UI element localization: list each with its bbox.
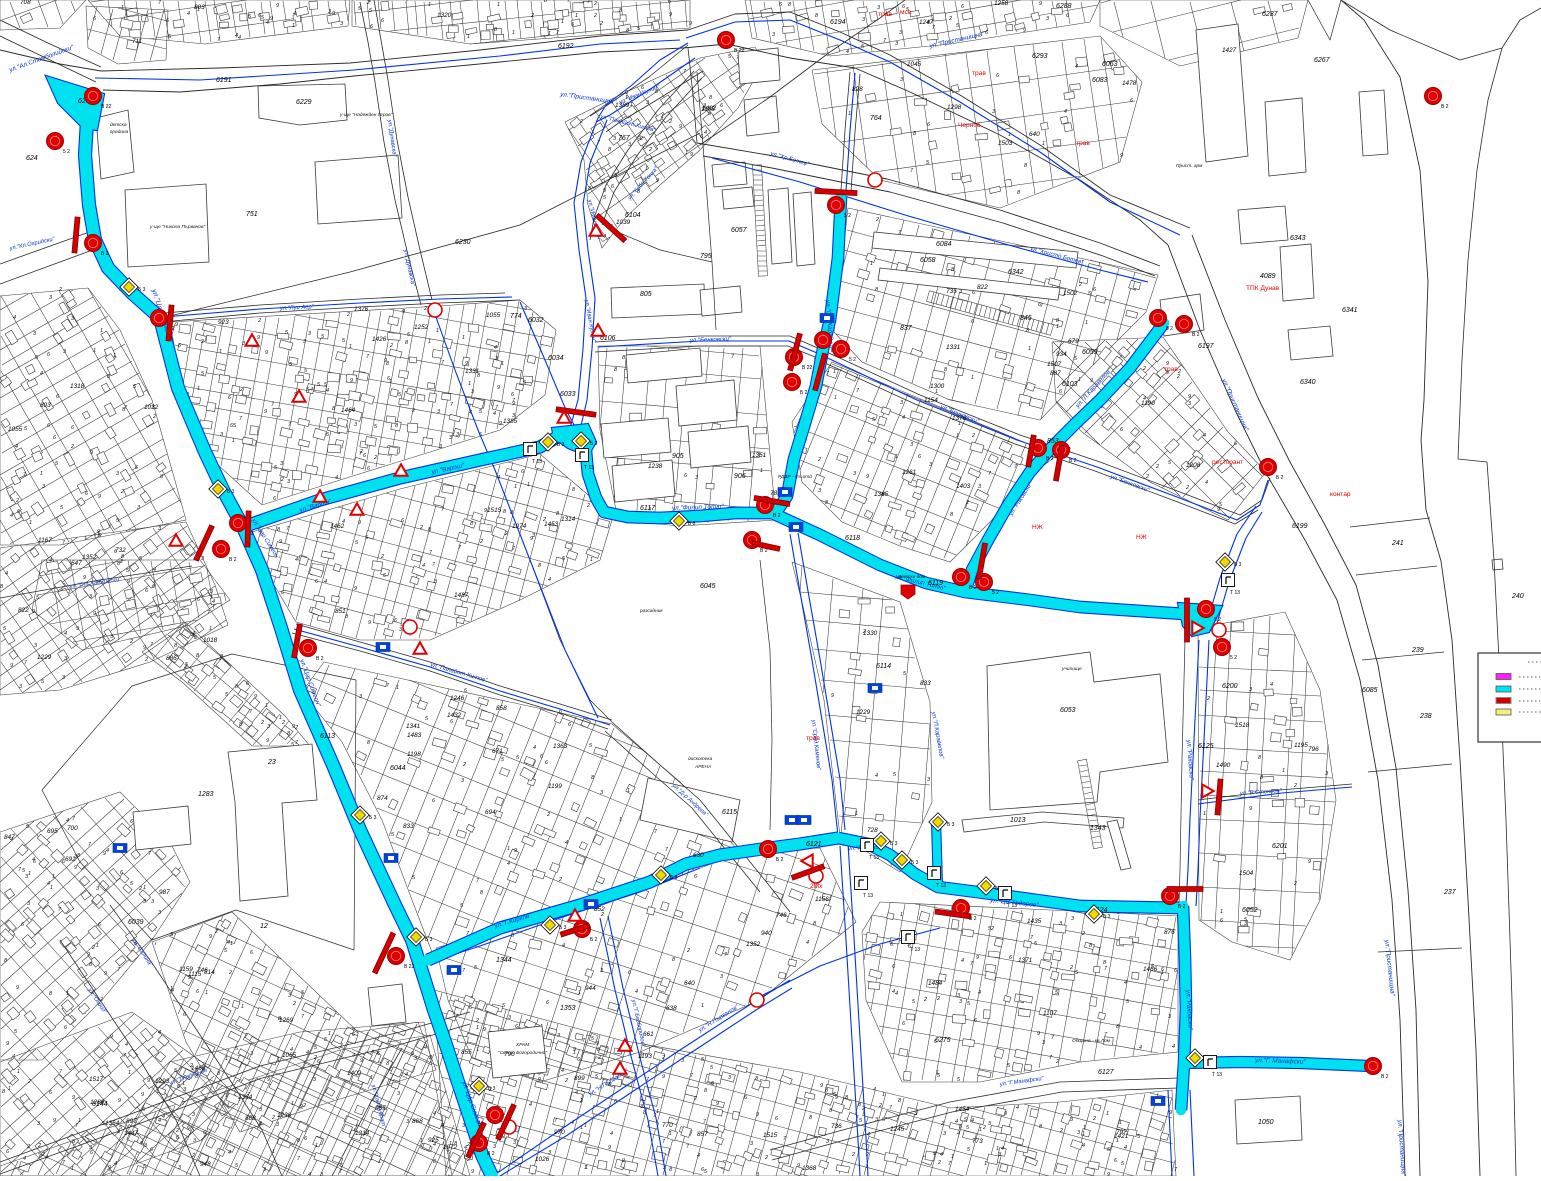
svg-text:9: 9 bbox=[499, 421, 502, 427]
svg-text:1269: 1269 bbox=[279, 1017, 294, 1024]
svg-text:770: 770 bbox=[662, 1122, 673, 1129]
svg-text:1045: 1045 bbox=[907, 61, 922, 68]
svg-text:23: 23 bbox=[267, 759, 276, 766]
svg-text:6: 6 bbox=[1059, 389, 1062, 395]
svg-text:3: 3 bbox=[756, 1172, 759, 1176]
svg-text:3: 3 bbox=[25, 874, 28, 880]
svg-text:1437: 1437 bbox=[454, 592, 469, 599]
svg-text:4: 4 bbox=[1075, 64, 1078, 70]
svg-text:6: 6 bbox=[130, 819, 133, 825]
svg-text:4: 4 bbox=[565, 840, 568, 846]
svg-text:8: 8 bbox=[1089, 943, 1092, 949]
svg-text:6103: 6103 bbox=[1062, 381, 1078, 388]
svg-text:8: 8 bbox=[944, 367, 947, 373]
svg-text:2: 2 bbox=[419, 525, 423, 531]
svg-text:4: 4 bbox=[324, 579, 327, 585]
svg-text:3: 3 bbox=[1046, 16, 1049, 22]
svg-text:ресторант: ресторант bbox=[1212, 459, 1243, 466]
svg-text:6343: 6343 bbox=[1290, 235, 1306, 242]
svg-text:4: 4 bbox=[697, 1153, 700, 1159]
svg-text:трав: трав bbox=[972, 70, 986, 77]
svg-text:5 2: 5 2 bbox=[63, 149, 70, 155]
svg-text:6: 6 bbox=[120, 870, 123, 876]
svg-text:3: 3 bbox=[406, 1119, 409, 1125]
svg-text:4: 4 bbox=[295, 557, 298, 563]
svg-text:4: 4 bbox=[867, 1132, 870, 1138]
svg-text:732: 732 bbox=[115, 547, 126, 554]
svg-text:6: 6 bbox=[6, 1149, 9, 1155]
svg-text:238: 238 bbox=[1419, 713, 1432, 720]
svg-text:3: 3 bbox=[1042, 1040, 1045, 1046]
svg-text:3: 3 bbox=[750, 1141, 753, 1147]
svg-text:2: 2 bbox=[228, 970, 232, 976]
svg-text:1: 1 bbox=[548, 31, 551, 37]
svg-text:1: 1 bbox=[685, 150, 688, 156]
svg-text:1: 1 bbox=[501, 361, 504, 367]
svg-text:1156: 1156 bbox=[815, 896, 829, 903]
svg-text:3: 3 bbox=[354, 422, 357, 428]
svg-text:4: 4 bbox=[875, 773, 878, 779]
svg-text:4: 4 bbox=[1205, 480, 1208, 486]
svg-text:2: 2 bbox=[504, 531, 508, 537]
svg-text:8: 8 bbox=[332, 406, 335, 412]
svg-text:6: 6 bbox=[571, 22, 574, 28]
svg-text:905: 905 bbox=[672, 453, 684, 460]
svg-text:2: 2 bbox=[593, 1, 597, 7]
svg-text:8: 8 bbox=[49, 991, 52, 997]
svg-text:1055: 1055 bbox=[486, 312, 501, 319]
svg-text:Б 2: Б 2 bbox=[101, 251, 109, 257]
svg-text:6: 6 bbox=[568, 722, 571, 728]
svg-text:5 2: 5 2 bbox=[1166, 326, 1173, 332]
svg-text:6: 6 bbox=[974, 1018, 977, 1024]
svg-text:6053: 6053 bbox=[1060, 707, 1076, 714]
svg-text:6115: 6115 bbox=[722, 809, 737, 816]
svg-text:2: 2 bbox=[965, 500, 969, 506]
svg-text:1: 1 bbox=[100, 328, 103, 334]
svg-text:2: 2 bbox=[586, 503, 590, 509]
svg-text:3: 3 bbox=[1070, 1117, 1073, 1123]
svg-text:8: 8 bbox=[89, 962, 92, 968]
svg-text:1: 1 bbox=[265, 703, 268, 709]
svg-text:1208: 1208 bbox=[1186, 462, 1201, 469]
svg-text:1: 1 bbox=[476, 1025, 479, 1031]
svg-text:638: 638 bbox=[666, 1005, 677, 1012]
svg-text:1: 1 bbox=[40, 471, 43, 477]
svg-text:Б 3: Б 3 bbox=[590, 441, 598, 447]
svg-text:1: 1 bbox=[29, 520, 32, 526]
svg-text:746: 746 bbox=[776, 912, 787, 919]
svg-text:9: 9 bbox=[264, 409, 267, 415]
svg-text:4: 4 bbox=[1203, 433, 1206, 439]
svg-text:4: 4 bbox=[23, 1156, 26, 1162]
svg-text:4: 4 bbox=[561, 1068, 564, 1074]
svg-text:1: 1 bbox=[661, 114, 664, 120]
svg-text:1435: 1435 bbox=[1027, 918, 1042, 925]
svg-text:4: 4 bbox=[1082, 1143, 1085, 1149]
svg-text:2: 2 bbox=[530, 13, 534, 19]
svg-text:РДВР - Фл.отд: РДВР - Фл.отд bbox=[778, 474, 812, 480]
svg-text:8: 8 bbox=[1260, 775, 1263, 781]
svg-text:2: 2 bbox=[1092, 1116, 1096, 1122]
svg-text:1466: 1466 bbox=[191, 1065, 206, 1072]
svg-text:1: 1 bbox=[467, 34, 470, 40]
svg-text:Детски дом: Детски дом bbox=[897, 574, 926, 580]
svg-text:1: 1 bbox=[497, 2, 500, 8]
svg-text:8: 8 bbox=[433, 1159, 436, 1165]
svg-text:6063: 6063 bbox=[1102, 61, 1118, 68]
svg-text:944: 944 bbox=[585, 985, 596, 992]
svg-text:6: 6 bbox=[1009, 955, 1012, 961]
svg-text:3: 3 bbox=[959, 289, 962, 295]
svg-text:2: 2 bbox=[990, 926, 994, 932]
svg-text:1229: 1229 bbox=[856, 709, 871, 716]
svg-text:2: 2 bbox=[1069, 965, 1073, 971]
svg-text:4: 4 bbox=[961, 958, 964, 964]
svg-text:1: 1 bbox=[205, 990, 208, 996]
svg-text:4: 4 bbox=[422, 563, 425, 569]
svg-text:6: 6 bbox=[367, 466, 370, 472]
svg-text:3: 3 bbox=[495, 356, 498, 362]
svg-text:6: 6 bbox=[744, 1095, 747, 1101]
svg-text:мсв: мсв bbox=[900, 9, 912, 16]
svg-text:Б 3: Б 3 bbox=[947, 822, 955, 828]
svg-text:833: 833 bbox=[920, 680, 931, 687]
svg-text:8: 8 bbox=[174, 643, 177, 649]
svg-text:4: 4 bbox=[603, 234, 606, 240]
svg-text:6: 6 bbox=[64, 1025, 67, 1031]
svg-text:2: 2 bbox=[366, 0, 370, 6]
svg-text:1: 1 bbox=[66, 991, 69, 997]
svg-text:1245: 1245 bbox=[890, 1126, 905, 1133]
svg-text:3: 3 bbox=[1188, 401, 1191, 407]
svg-text:2: 2 bbox=[389, 343, 393, 349]
svg-text:4: 4 bbox=[955, 1119, 958, 1125]
svg-text:1: 1 bbox=[833, 369, 836, 375]
svg-text:2: 2 bbox=[579, 1098, 583, 1104]
svg-text:2: 2 bbox=[875, 217, 879, 223]
svg-text:833: 833 bbox=[403, 823, 414, 830]
svg-text:ТПК Дунав: ТПК Дунав bbox=[1246, 285, 1280, 292]
svg-text:8: 8 bbox=[829, 1108, 832, 1114]
svg-text:1: 1 bbox=[428, 2, 431, 8]
svg-text:6: 6 bbox=[53, 435, 56, 441]
svg-text:764: 764 bbox=[870, 115, 882, 122]
svg-text:2: 2 bbox=[1142, 366, 1146, 372]
svg-text:6: 6 bbox=[577, 1057, 580, 1063]
svg-text:4: 4 bbox=[493, 411, 496, 417]
svg-text:1385: 1385 bbox=[503, 418, 518, 425]
svg-text:837: 837 bbox=[900, 325, 913, 332]
svg-text:1: 1 bbox=[656, 1109, 659, 1115]
svg-text:1: 1 bbox=[96, 943, 99, 949]
svg-text:Б 3: Б 3 bbox=[890, 841, 898, 847]
svg-text:9: 9 bbox=[514, 848, 517, 854]
svg-text:8: 8 bbox=[597, 1047, 600, 1053]
svg-text:803: 803 bbox=[40, 402, 51, 409]
svg-text:876: 876 bbox=[1164, 929, 1175, 936]
svg-text:8: 8 bbox=[217, 1071, 220, 1077]
svg-text:1: 1 bbox=[590, 557, 593, 563]
svg-text:3: 3 bbox=[862, 17, 865, 23]
svg-text:3: 3 bbox=[613, 136, 616, 142]
svg-text:1039: 1039 bbox=[616, 219, 631, 226]
svg-text:3: 3 bbox=[37, 1121, 40, 1127]
svg-text:9: 9 bbox=[354, 586, 357, 592]
svg-text:1353: 1353 bbox=[560, 1005, 576, 1012]
svg-text:6: 6 bbox=[145, 588, 148, 594]
svg-text:2: 2 bbox=[1155, 464, 1159, 470]
svg-text:1331: 1331 bbox=[465, 368, 480, 375]
svg-text:987: 987 bbox=[159, 889, 170, 896]
svg-text:4: 4 bbox=[228, 1150, 231, 1156]
svg-text:3: 3 bbox=[988, 1121, 991, 1127]
svg-text:НЖ: НЖ bbox=[1136, 534, 1147, 541]
svg-text:9: 9 bbox=[1107, 1172, 1110, 1176]
svg-text:Б 3: Б 3 bbox=[227, 489, 235, 495]
svg-text:детска: детска bbox=[110, 122, 127, 128]
svg-text:4: 4 bbox=[1124, 1145, 1127, 1151]
svg-text:1: 1 bbox=[8, 1086, 11, 1092]
svg-text:3: 3 bbox=[532, 533, 535, 539]
svg-text:2Мх: 2Мх bbox=[810, 883, 823, 890]
svg-text:НЖ: НЖ bbox=[1032, 524, 1043, 531]
svg-text:В 22: В 22 bbox=[101, 104, 112, 110]
svg-text:1115: 1115 bbox=[188, 971, 202, 978]
svg-text:1363: 1363 bbox=[553, 743, 568, 750]
svg-text:1: 1 bbox=[219, 349, 222, 355]
svg-text:3: 3 bbox=[397, 1091, 400, 1097]
svg-text:3: 3 bbox=[263, 1167, 266, 1173]
svg-text:3: 3 bbox=[210, 589, 213, 595]
svg-text:3: 3 bbox=[399, 627, 402, 633]
svg-text:5 2: 5 2 bbox=[1230, 655, 1237, 661]
svg-text:4: 4 bbox=[873, 1087, 876, 1093]
svg-text:1: 1 bbox=[349, 344, 352, 350]
svg-text:дискотека: дискотека bbox=[688, 756, 713, 762]
svg-text:3: 3 bbox=[449, 435, 452, 441]
svg-text:у-ще "Никола Първанов": у-ще "Никола Първанов" bbox=[149, 224, 205, 230]
svg-text:4: 4 bbox=[978, 990, 981, 996]
svg-text:6032: 6032 bbox=[528, 317, 544, 324]
svg-text:Т 13: Т 13 bbox=[532, 459, 542, 465]
svg-text:4: 4 bbox=[1172, 1044, 1175, 1050]
svg-text:4: 4 bbox=[529, 1102, 532, 1108]
svg-text:8: 8 bbox=[405, 340, 408, 346]
svg-text:4: 4 bbox=[310, 387, 313, 393]
svg-text:8: 8 bbox=[825, 1088, 828, 1094]
svg-text:4: 4 bbox=[187, 11, 190, 17]
svg-text:1: 1 bbox=[848, 111, 851, 117]
svg-text:2: 2 bbox=[15, 498, 19, 504]
svg-text:Б 3: Б 3 bbox=[670, 875, 678, 881]
svg-text:1: 1 bbox=[1203, 811, 1206, 817]
svg-text:8: 8 bbox=[709, 95, 712, 101]
svg-text:8: 8 bbox=[825, 500, 828, 506]
svg-text:9: 9 bbox=[53, 1118, 56, 1124]
svg-text:9: 9 bbox=[209, 934, 212, 940]
svg-text:8: 8 bbox=[556, 511, 559, 517]
svg-text:В 22: В 22 bbox=[404, 964, 415, 970]
svg-text:4: 4 bbox=[158, 1030, 161, 1036]
svg-text:1: 1 bbox=[971, 375, 974, 381]
svg-text:4: 4 bbox=[125, 1042, 128, 1048]
svg-text:6: 6 bbox=[228, 395, 231, 401]
svg-text:8: 8 bbox=[614, 367, 617, 373]
svg-text:4: 4 bbox=[238, 35, 241, 41]
svg-text:разсадник: разсадник bbox=[639, 608, 663, 614]
svg-text:В 2: В 2 bbox=[1046, 456, 1054, 462]
svg-text:4: 4 bbox=[66, 818, 69, 824]
svg-text:2: 2 bbox=[940, 1121, 944, 1127]
svg-text:2: 2 bbox=[271, 1115, 275, 1121]
svg-text:6: 6 bbox=[521, 469, 524, 475]
svg-text:640: 640 bbox=[684, 980, 695, 987]
svg-text:9: 9 bbox=[1120, 153, 1123, 159]
svg-text:1: 1 bbox=[52, 874, 55, 880]
svg-text:1: 1 bbox=[979, 1127, 982, 1133]
svg-text:6: 6 bbox=[1093, 287, 1096, 293]
svg-text:4: 4 bbox=[15, 444, 18, 450]
svg-text:1: 1 bbox=[17, 1069, 20, 1075]
svg-text:Б 3: Б 3 bbox=[911, 860, 919, 866]
svg-text:1: 1 bbox=[1078, 377, 1081, 383]
svg-text:8: 8 bbox=[386, 361, 389, 367]
svg-text:8: 8 bbox=[367, 740, 370, 746]
svg-text:8: 8 bbox=[1039, 1124, 1042, 1130]
svg-text:2: 2 bbox=[313, 1055, 317, 1061]
svg-text:4: 4 bbox=[1139, 1045, 1142, 1051]
svg-text:6: 6 bbox=[85, 491, 88, 497]
svg-text:3: 3 bbox=[875, 1117, 878, 1123]
svg-text:1: 1 bbox=[855, 811, 858, 817]
svg-text:2: 2 bbox=[200, 339, 204, 345]
svg-text:8: 8 bbox=[395, 423, 398, 429]
svg-text:822: 822 bbox=[977, 284, 988, 291]
svg-text:3: 3 bbox=[720, 974, 723, 980]
svg-text:1: 1 bbox=[936, 1070, 939, 1076]
svg-text:1466: 1466 bbox=[1143, 966, 1158, 973]
svg-text:1376: 1376 bbox=[354, 306, 369, 313]
svg-text:8: 8 bbox=[669, 1167, 672, 1173]
svg-text:2: 2 bbox=[479, 539, 483, 545]
svg-text:Т 13: Т 13 bbox=[936, 883, 946, 889]
svg-text:9: 9 bbox=[270, 16, 273, 22]
svg-text:6121: 6121 bbox=[806, 841, 822, 848]
svg-text:6: 6 bbox=[450, 719, 453, 725]
svg-text:1: 1 bbox=[328, 1031, 331, 1037]
svg-text:8: 8 bbox=[875, 287, 878, 293]
svg-text:6342: 6342 bbox=[1008, 269, 1024, 276]
svg-text:8: 8 bbox=[626, 28, 629, 34]
svg-text:6201: 6201 bbox=[1272, 843, 1288, 850]
svg-text:6: 6 bbox=[1220, 918, 1223, 924]
svg-text:3: 3 bbox=[27, 901, 30, 907]
svg-text:4: 4 bbox=[902, 415, 905, 421]
svg-text:1376: 1376 bbox=[952, 415, 967, 422]
svg-text:1351: 1351 bbox=[752, 452, 767, 459]
svg-text:6293: 6293 bbox=[1032, 53, 1048, 60]
svg-text:624: 624 bbox=[26, 155, 38, 162]
svg-text:6: 6 bbox=[511, 392, 514, 398]
svg-text:1: 1 bbox=[575, 13, 578, 19]
svg-text:4: 4 bbox=[940, 1152, 943, 1158]
svg-text:1462: 1462 bbox=[330, 523, 345, 530]
svg-text:3: 3 bbox=[359, 694, 362, 700]
svg-text:868: 868 bbox=[412, 1118, 423, 1125]
svg-text:858: 858 bbox=[496, 705, 507, 712]
svg-text:4: 4 bbox=[846, 49, 849, 55]
svg-text:9: 9 bbox=[471, 1169, 474, 1175]
svg-text:1483: 1483 bbox=[407, 732, 422, 739]
svg-text:9: 9 bbox=[108, 1165, 111, 1171]
svg-text:9: 9 bbox=[292, 724, 295, 730]
svg-text:934: 934 bbox=[1056, 351, 1067, 358]
svg-text:1: 1 bbox=[230, 941, 233, 947]
svg-text:6: 6 bbox=[47, 352, 50, 358]
svg-text:711: 711 bbox=[132, 38, 143, 45]
svg-text:3: 3 bbox=[288, 993, 291, 999]
svg-text:2: 2 bbox=[982, 1125, 986, 1131]
svg-text:1246: 1246 bbox=[450, 695, 465, 702]
svg-text:2: 2 bbox=[120, 489, 124, 495]
svg-text:1: 1 bbox=[436, 328, 439, 334]
svg-text:2: 2 bbox=[91, 945, 95, 951]
svg-text:8: 8 bbox=[813, 921, 816, 927]
svg-text:3: 3 bbox=[853, 471, 856, 477]
svg-text:6: 6 bbox=[93, 16, 96, 22]
svg-text:9: 9 bbox=[90, 450, 93, 456]
svg-text:805: 805 bbox=[640, 291, 652, 298]
svg-text:8: 8 bbox=[898, 1098, 901, 1104]
svg-text:6052: 6052 bbox=[1242, 907, 1258, 914]
svg-text:1507: 1507 bbox=[1047, 361, 1062, 368]
svg-text:6200: 6200 bbox=[1222, 683, 1238, 690]
svg-text:9: 9 bbox=[127, 579, 130, 585]
svg-text:1: 1 bbox=[984, 1161, 987, 1167]
svg-text:6: 6 bbox=[21, 922, 24, 928]
svg-text:886: 886 bbox=[166, 655, 177, 662]
svg-text:2: 2 bbox=[373, 455, 377, 461]
svg-text:3: 3 bbox=[158, 910, 161, 916]
svg-text:1: 1 bbox=[50, 885, 53, 891]
svg-text:647: 647 bbox=[71, 560, 82, 567]
svg-text:4: 4 bbox=[1124, 980, 1127, 986]
svg-text:2: 2 bbox=[144, 657, 148, 663]
svg-text:Б 3: Б 3 bbox=[1234, 562, 1242, 568]
svg-text:2: 2 bbox=[668, 119, 672, 125]
svg-text:8: 8 bbox=[235, 684, 238, 690]
svg-text:3: 3 bbox=[49, 295, 52, 301]
svg-text:1: 1 bbox=[882, 1092, 885, 1098]
svg-text:4: 4 bbox=[13, 315, 16, 321]
svg-text:4: 4 bbox=[433, 1111, 436, 1117]
svg-text:4: 4 bbox=[5, 571, 8, 577]
svg-text:6: 6 bbox=[363, 453, 366, 459]
svg-text:4: 4 bbox=[212, 599, 215, 605]
svg-text:3: 3 bbox=[1071, 916, 1074, 922]
svg-text:8: 8 bbox=[619, 8, 622, 14]
svg-text:1072: 1072 bbox=[443, 1144, 458, 1151]
svg-text:3: 3 bbox=[772, 32, 775, 38]
svg-text:8: 8 bbox=[428, 527, 431, 533]
svg-text:1108: 1108 bbox=[701, 106, 715, 113]
svg-text:6039: 6039 bbox=[128, 919, 144, 926]
svg-text:9: 9 bbox=[276, 3, 279, 9]
svg-text:4: 4 bbox=[1016, 1105, 1019, 1111]
svg-text:3: 3 bbox=[600, 968, 603, 974]
svg-text:Б 3: Б 3 bbox=[488, 1086, 496, 1092]
